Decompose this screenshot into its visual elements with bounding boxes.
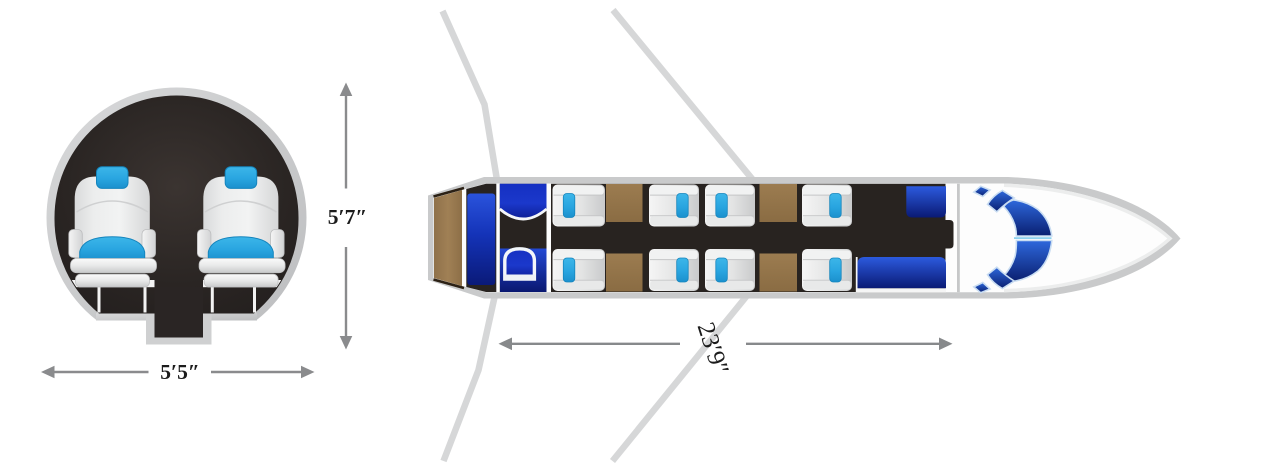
svg-text:5′7″: 5′7″	[328, 205, 367, 229]
svg-text:5′5″: 5′5″	[160, 360, 199, 384]
